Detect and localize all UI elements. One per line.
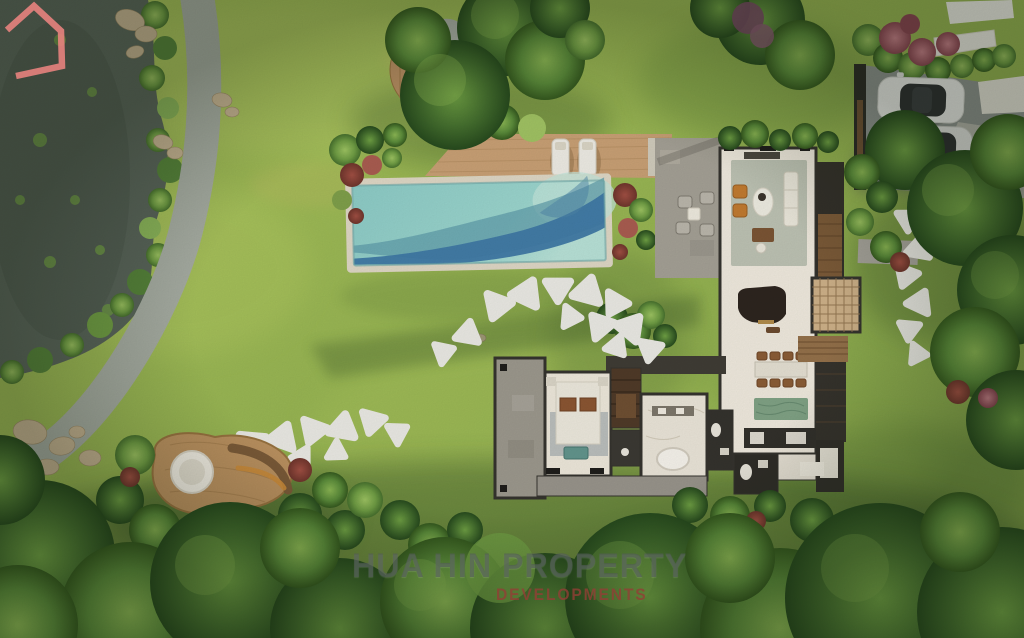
aerial-villa-render: HUA HIN PROPERTY DEVELOPMENTS (0, 0, 1024, 638)
vignette (0, 0, 1024, 638)
scene-canvas (0, 0, 1024, 638)
